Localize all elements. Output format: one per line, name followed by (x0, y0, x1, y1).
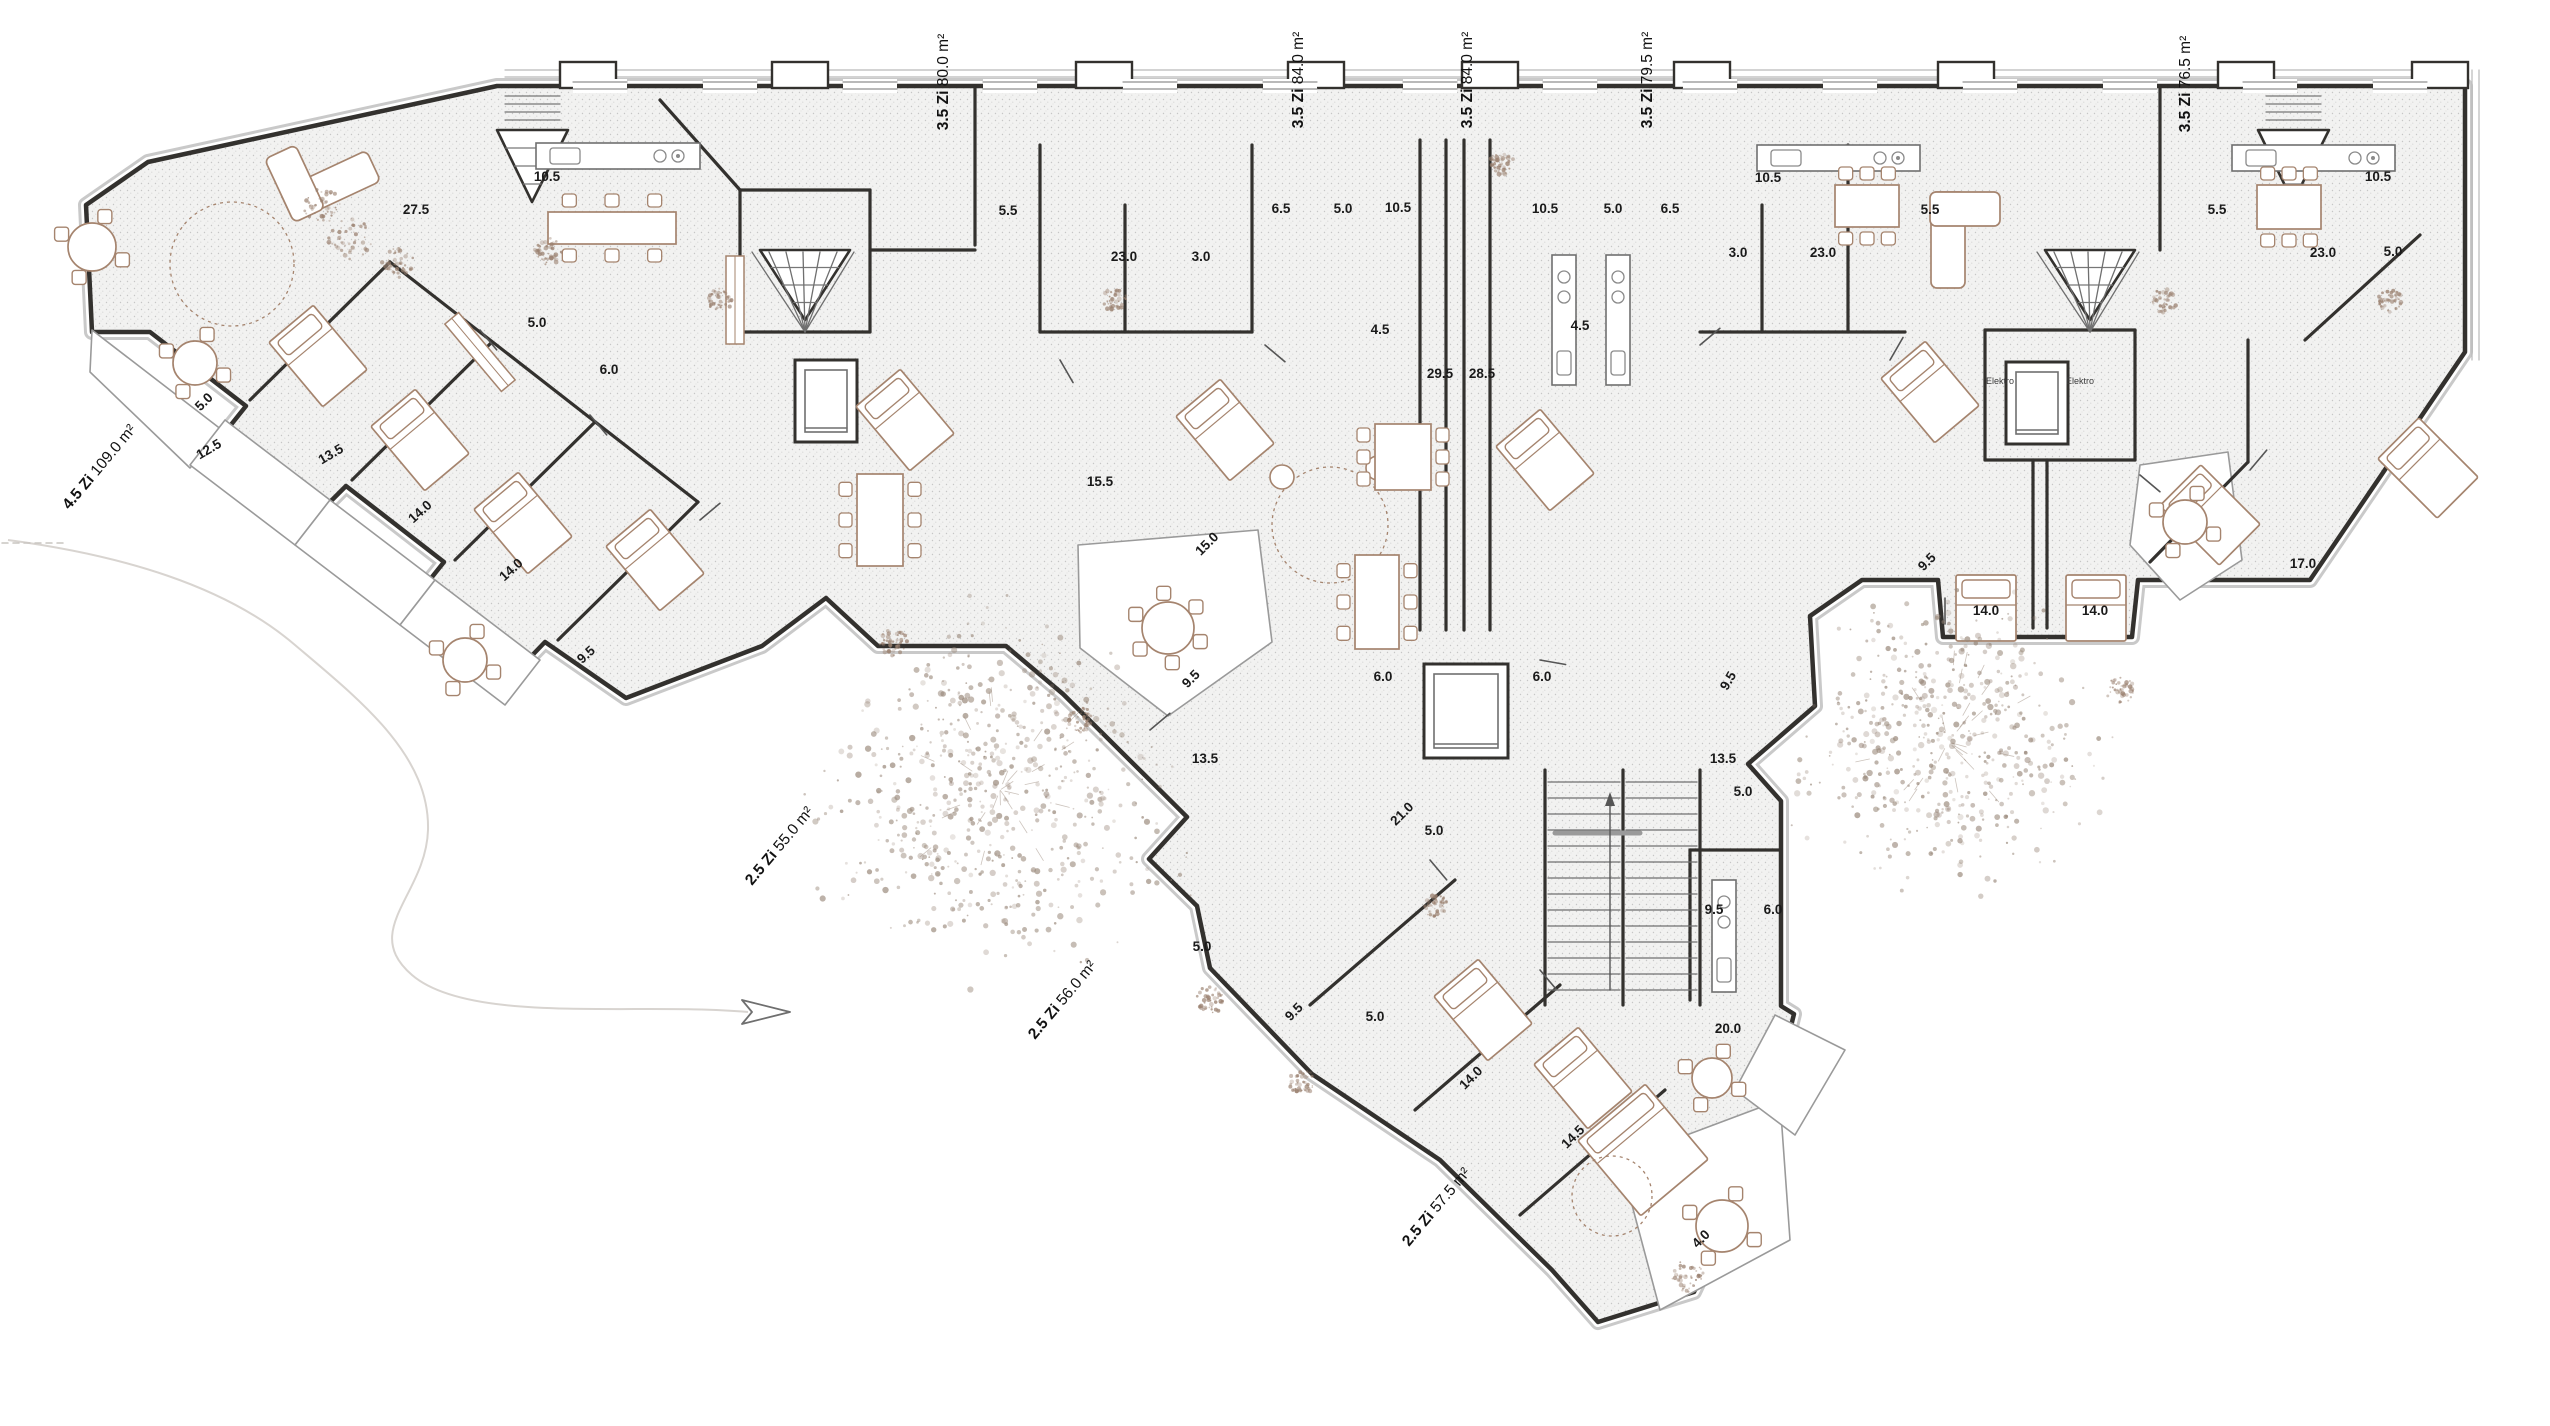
apartment-label: 2.5 Zi 57.5 m² (1399, 1165, 1474, 1250)
dining-table (1337, 555, 1417, 649)
room-area-label: 5.0 (1334, 201, 1353, 216)
room-area-label: 13.5 (1710, 751, 1737, 766)
apartment-label: 4.5 Zi 109.0 m² (59, 421, 140, 512)
room-area-label: 14.0 (2082, 603, 2108, 618)
direction-arrow (742, 1000, 790, 1024)
room-area-label: 23.0 (1810, 245, 1836, 260)
room-area-label: 3.0 (1729, 245, 1748, 260)
dining-table (839, 474, 921, 566)
room-area-label: 5.0 (1604, 201, 1623, 216)
dining-table (2257, 167, 2321, 247)
dining-table (1835, 167, 1899, 245)
room-area-label: 6.0 (1374, 669, 1393, 684)
room-area-label: 20.0 (1715, 1021, 1741, 1036)
room-area-label: 5.0 (1734, 784, 1753, 799)
apartment-label: 3.5 Zi 76.5 m² (2177, 36, 2194, 133)
dining-table (548, 194, 676, 262)
room-area-label: 6.0 (1533, 669, 1552, 684)
room-area-label: 23.0 (1111, 249, 1137, 264)
apartment-label: 2.5 Zi 55.0 m² (742, 804, 817, 889)
room-area-label: 28.5 (1469, 366, 1496, 381)
room-area-label: 5.5 (999, 203, 1018, 218)
room-area-label: 5.0 (1366, 1009, 1385, 1024)
room-area-label: 4.5 (1571, 318, 1590, 333)
room-area-label: 6.0 (1764, 902, 1783, 917)
room-area-label: 27.5 (403, 202, 430, 217)
room-area-label: 3.0 (1192, 249, 1211, 264)
floor-plan-canvas: 10.527.55.06.05.012.513.514.014.09.55.52… (0, 0, 2550, 1426)
room-area-label: 10.5 (1755, 170, 1782, 185)
room-area-label: 29.5 (1427, 366, 1454, 381)
elektro-label: Elektro (2066, 376, 2094, 386)
room-area-label: 13.5 (1192, 751, 1219, 766)
room-area-label: 23.0 (2310, 245, 2336, 260)
room-area-label: 15.5 (1087, 474, 1114, 489)
apartment-label: 3.5 Zi 84.0 m² (1290, 32, 1307, 129)
room-area-label: 14.0 (1973, 603, 1999, 618)
room-area-label: 6.5 (1272, 201, 1291, 216)
elektro-label: Elektro (1986, 376, 2014, 386)
apartment-label: 3.5 Zi 80.0 m² (935, 34, 952, 131)
room-area-label: 5.0 (2384, 244, 2403, 259)
floor-plan-drawing: 10.527.55.06.05.012.513.514.014.09.55.52… (0, 0, 2550, 1426)
room-area-label: 10.5 (2365, 169, 2392, 184)
room-area-label: 5.5 (2208, 202, 2227, 217)
room-area-label: 10.5 (1532, 201, 1559, 216)
room-area-label: 6.0 (600, 362, 619, 377)
room-area-label: 4.5 (1371, 322, 1390, 337)
room-area-label: 5.5 (1921, 202, 1940, 217)
room-area-label: 5.0 (1425, 823, 1444, 838)
room-area-label: 5.0 (1193, 939, 1212, 954)
room-area-label: 9.5 (1705, 902, 1724, 917)
room-area-label: 17.0 (2290, 556, 2316, 571)
room-area-label: 10.5 (534, 169, 561, 184)
room-area-label: 5.0 (528, 315, 547, 330)
room-area-label: 6.5 (1661, 201, 1680, 216)
apartment-label: 3.5 Zi 79.5 m² (1639, 32, 1656, 129)
apartment-label: 3.5 Zi 84.0 m² (1459, 32, 1476, 129)
shrub (2106, 677, 2134, 704)
room-area-label: 10.5 (1385, 200, 1412, 215)
apartment-label: 2.5 Zi 56.0 m² (1025, 958, 1100, 1043)
